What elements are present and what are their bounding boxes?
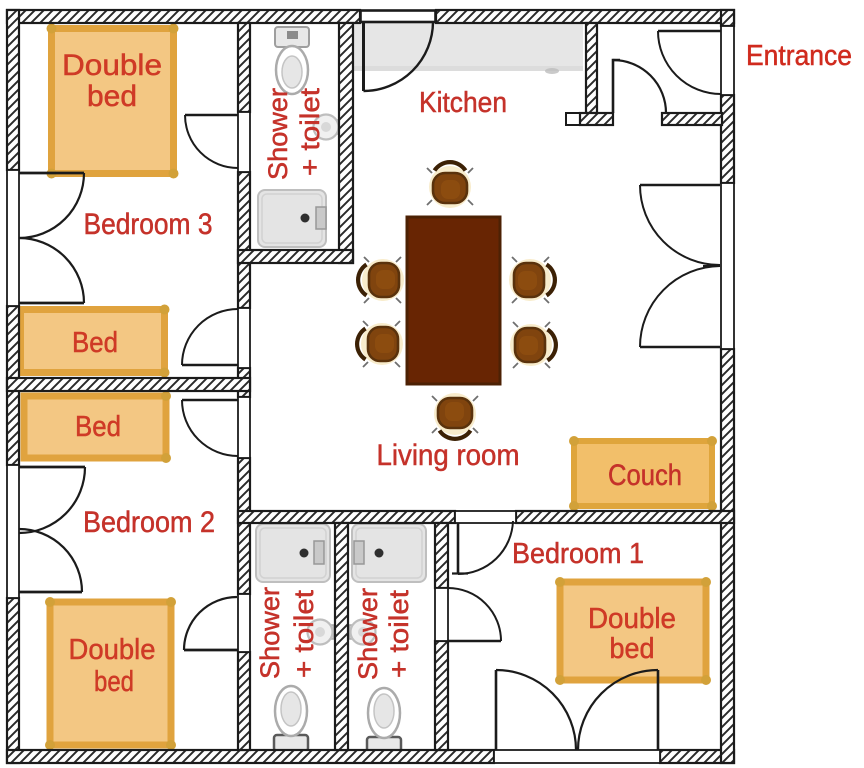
svg-text:Living room: Living room — [377, 439, 520, 472]
svg-text:+ toilet: + toilet — [384, 589, 414, 678]
svg-text:Bedroom 3: Bedroom 3 — [84, 208, 213, 241]
svg-text:+ toilet: + toilet — [289, 589, 319, 678]
svg-text:Bed: Bed — [75, 411, 121, 443]
svg-text:bed: bed — [94, 666, 134, 698]
svg-text:Bed: Bed — [72, 327, 118, 359]
svg-text:Shower: Shower — [263, 88, 293, 180]
svg-text:+ toilet: + toilet — [295, 87, 325, 176]
svg-text:Entrance: Entrance — [746, 40, 852, 72]
svg-text:Bedroom 2: Bedroom 2 — [83, 506, 215, 539]
svg-text:bed: bed — [87, 80, 137, 113]
svg-text:Bedroom 1: Bedroom 1 — [512, 538, 644, 570]
svg-text:Shower: Shower — [353, 588, 383, 680]
svg-text:Double: Double — [62, 49, 162, 82]
svg-text:Double: Double — [588, 603, 676, 635]
svg-text:bed: bed — [610, 633, 655, 665]
svg-text:Shower: Shower — [255, 587, 285, 679]
svg-text:Double: Double — [69, 634, 156, 666]
svg-text:Kitchen: Kitchen — [419, 87, 507, 119]
svg-text:Couch: Couch — [608, 459, 682, 492]
